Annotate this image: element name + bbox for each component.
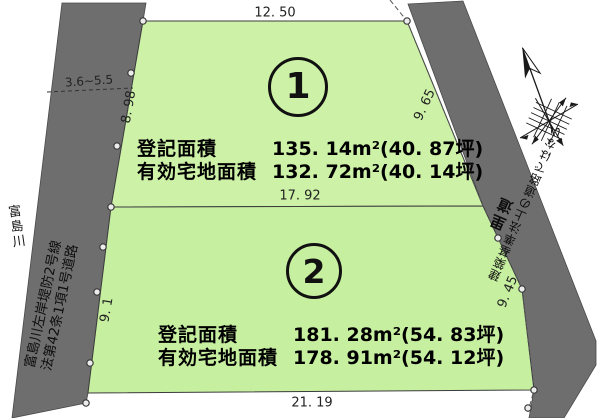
- plot1-area-info: 登記面積 135. 14m²(40. 87坪) 有効宅地面積 132. 72m²…: [137, 134, 483, 180]
- plot2-number-badge: 2: [286, 243, 342, 299]
- plot1-effective-label: 有効宅地面積: [137, 157, 272, 184]
- plot1-effective-row: 有効宅地面積 132. 72m²(40. 14坪): [137, 157, 483, 180]
- plot1-effective-value: 132. 72m²(40. 14坪): [272, 157, 483, 184]
- plot2-effective-row: 有効宅地面積 178. 91m²(54. 12坪): [158, 343, 504, 366]
- dimension-middle-edge: 17. 92: [279, 189, 320, 204]
- plot2-effective-value: 178. 91m²(54. 12坪): [293, 343, 504, 370]
- plot1-number-badge: 1: [268, 57, 328, 117]
- plot1-number: 1: [285, 69, 310, 105]
- dimension-bottom-edge: 21. 19: [291, 396, 332, 411]
- land-plot-diagram: 12. 50 17. 92 21. 19 8. 98 9. 1 9. 65 9.…: [0, 0, 600, 418]
- dimension-top-edge: 12. 50: [254, 6, 295, 21]
- plot2-effective-label: 有効宅地面積: [158, 343, 293, 370]
- plot2-registered-row: 登記面積 181. 28m²(54. 83坪): [158, 320, 504, 343]
- plot2-number: 2: [303, 255, 326, 288]
- plot1-registered-row: 登記面積 135. 14m²(40. 87坪): [137, 134, 483, 157]
- plot2-area-info: 登記面積 181. 28m²(54. 83坪) 有効宅地面積 178. 91m²…: [158, 320, 504, 366]
